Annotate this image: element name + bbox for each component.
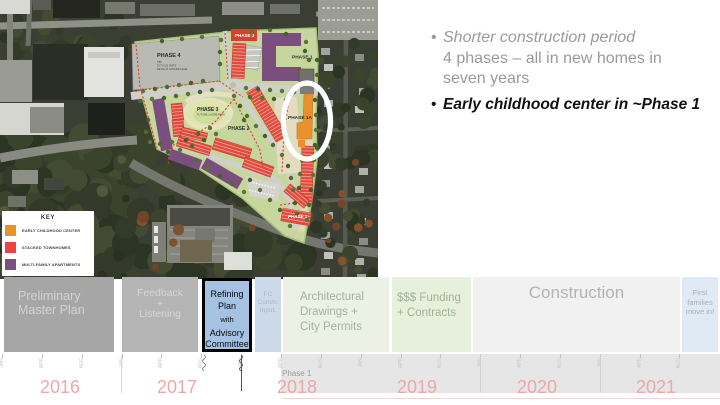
svg-text:FUTURE 1 ACRE PARK: FUTURE 1 ACRE PARK [197, 113, 225, 117]
svg-text:PHASE 3: PHASE 3 [197, 107, 219, 113]
svg-text:PHASE 2: PHASE 2 [228, 126, 250, 132]
svg-text:RETAIL AT GROUND LEVEL: RETAIL AT GROUND LEVEL [157, 68, 189, 71]
svg-text:PHASE 1A: PHASE 1A [288, 115, 313, 121]
svg-text:PHASE 1: PHASE 1 [292, 55, 313, 61]
svg-text:PHASE 4: PHASE 4 [157, 53, 181, 59]
svg-text:PHASE 1: PHASE 1 [288, 214, 308, 219]
